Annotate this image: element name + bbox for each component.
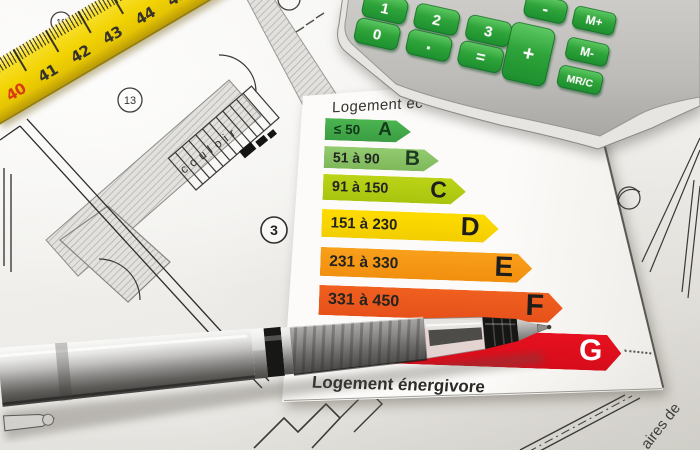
pen-grip bbox=[290, 315, 428, 375]
pen bbox=[0, 0, 700, 450]
photo-scene: couloir 11 13 3 bbox=[0, 0, 700, 450]
pen-clear-section bbox=[423, 313, 485, 358]
pen-cone-metal bbox=[517, 317, 539, 341]
pen-cone-black bbox=[482, 314, 519, 349]
pen-collar-ring-shine bbox=[251, 328, 266, 351]
